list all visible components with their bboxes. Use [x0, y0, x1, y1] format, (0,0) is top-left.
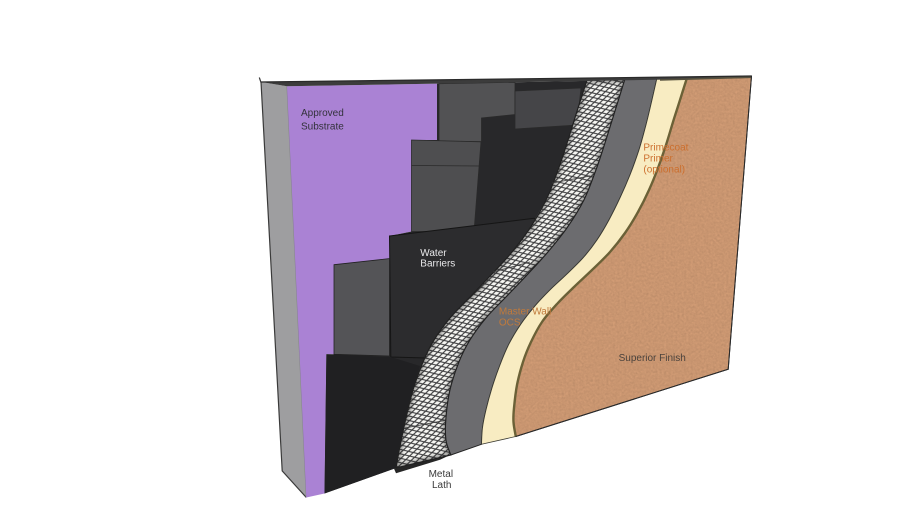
svg-text:Water: Water — [420, 248, 447, 259]
svg-text:Barriers: Barriers — [420, 259, 455, 270]
svg-text:Superior Finish: Superior Finish — [619, 353, 686, 364]
svg-text:OCS: OCS — [499, 318, 521, 329]
svg-text:Primer: Primer — [643, 154, 673, 165]
svg-text:Lath: Lath — [432, 480, 451, 491]
svg-text:(optional): (optional) — [643, 165, 685, 176]
svg-text:Metal: Metal — [429, 469, 453, 480]
svg-text:Master Wall: Master Wall — [499, 307, 551, 318]
svg-text:Primecoat: Primecoat — [643, 143, 688, 154]
svg-text:Approved: Approved — [301, 108, 344, 119]
svg-text:Substrate: Substrate — [301, 122, 344, 133]
